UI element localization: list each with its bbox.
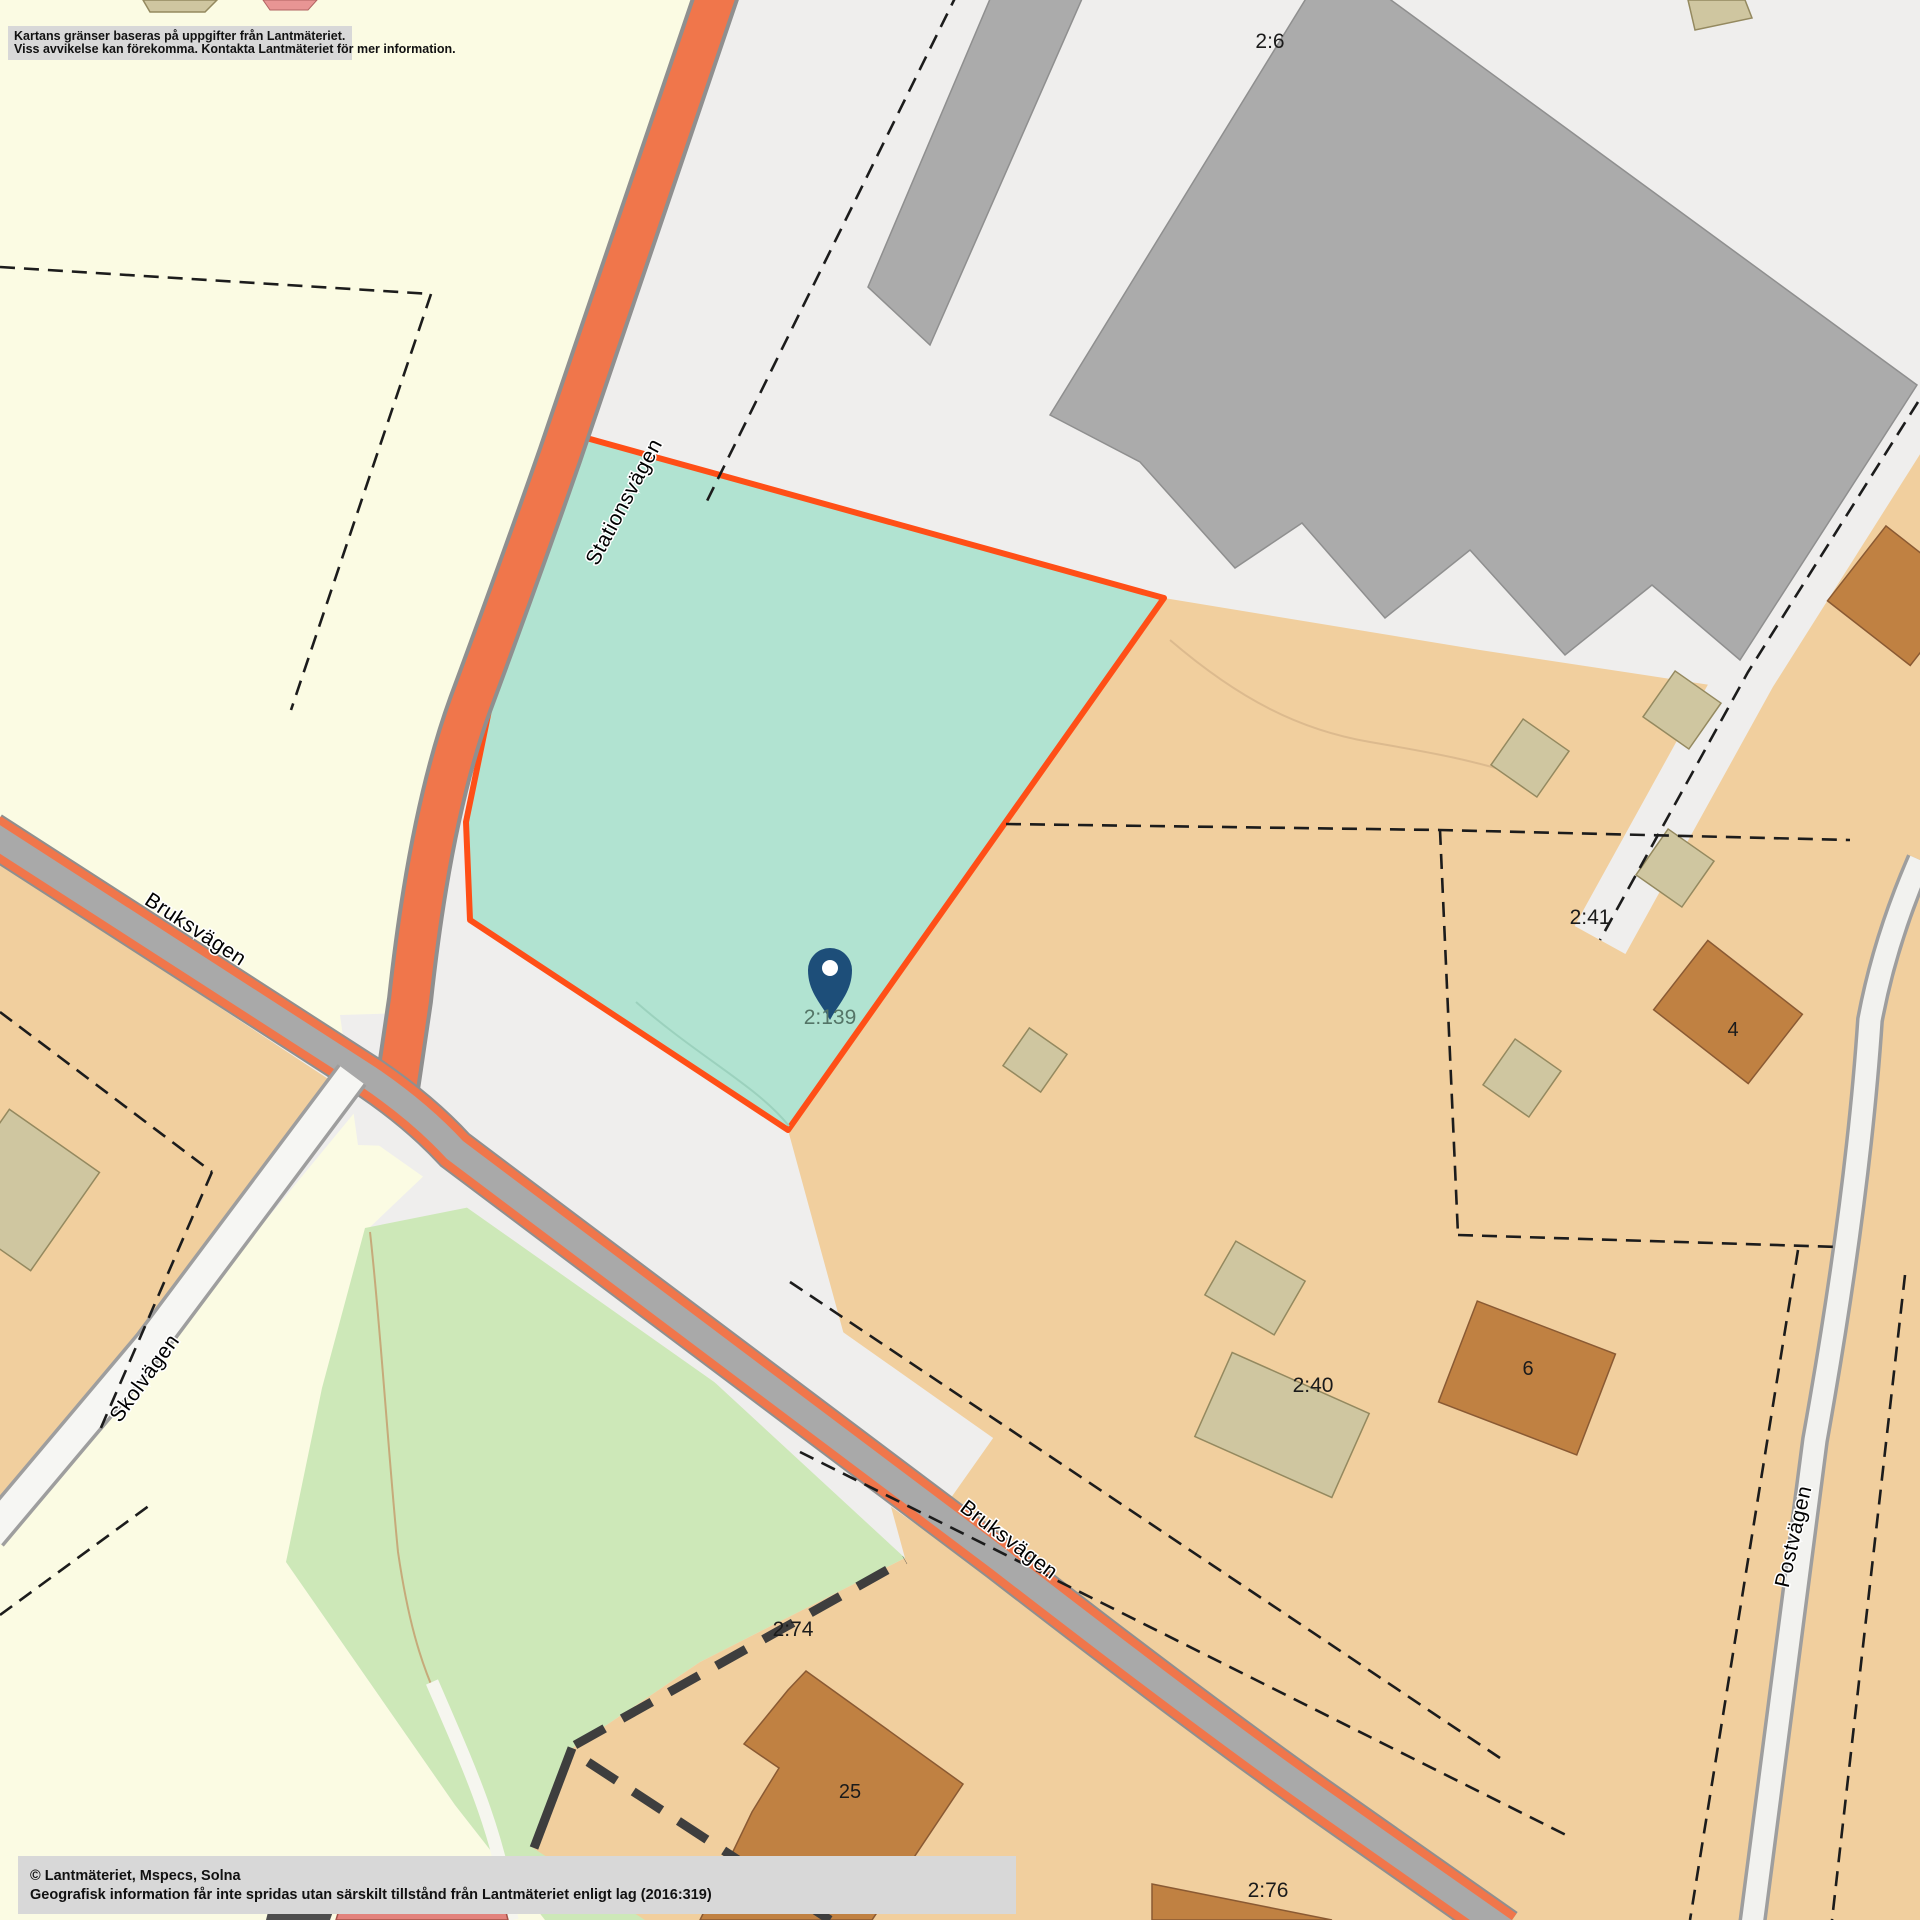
disclaimer-line2: Viss avvikelse kan förekomma. Kontakta L… (14, 42, 456, 56)
selected-parcel-label: 2:139 (804, 1006, 857, 1029)
building-label-25: 25 (839, 1781, 861, 1803)
map-canvas[interactable]: 2:6 2:41 2:40 2:74 2:76 4 6 25 Stationsv… (0, 0, 1920, 1920)
attribution-line2: Geografisk information får inte spridas … (30, 1887, 712, 1903)
parcel-label-2-41: 2:41 (1570, 906, 1611, 929)
outbuilding-sliver (143, 0, 217, 12)
building-label-6: 6 (1522, 1358, 1533, 1380)
building-pink-sliver (263, 0, 317, 10)
parcel-label-2-76: 2:76 (1248, 1879, 1289, 1902)
building-label-4: 4 (1727, 1019, 1738, 1041)
parcel-label-2-74: 2:74 (773, 1618, 814, 1641)
disclaimer-line1: Kartans gränser baseras på uppgifter frå… (14, 29, 345, 43)
parcel-label-2-6: 2:6 (1255, 30, 1284, 53)
pin-hole (822, 960, 838, 976)
attribution-line1: © Lantmäteriet, Mspecs, Solna (30, 1868, 241, 1884)
attribution-box: © Lantmäteriet, Mspecs, Solna Geografisk… (18, 1856, 1016, 1914)
parcel-label-2-40: 2:40 (1293, 1374, 1334, 1397)
